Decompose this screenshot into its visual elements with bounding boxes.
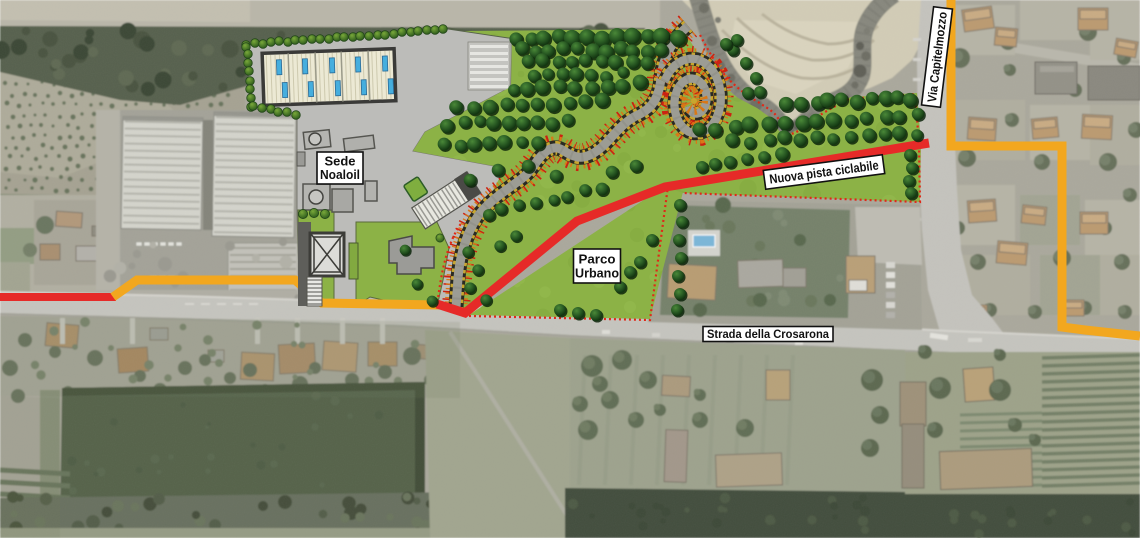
svg-text:Strada della Crosarona: Strada della Crosarona: [707, 327, 829, 341]
svg-text:Parco: Parco: [579, 252, 616, 267]
svg-text:Noaloil: Noaloil: [320, 168, 360, 182]
svg-text:Sede: Sede: [325, 155, 356, 169]
svg-text:Urbano: Urbano: [575, 266, 619, 281]
